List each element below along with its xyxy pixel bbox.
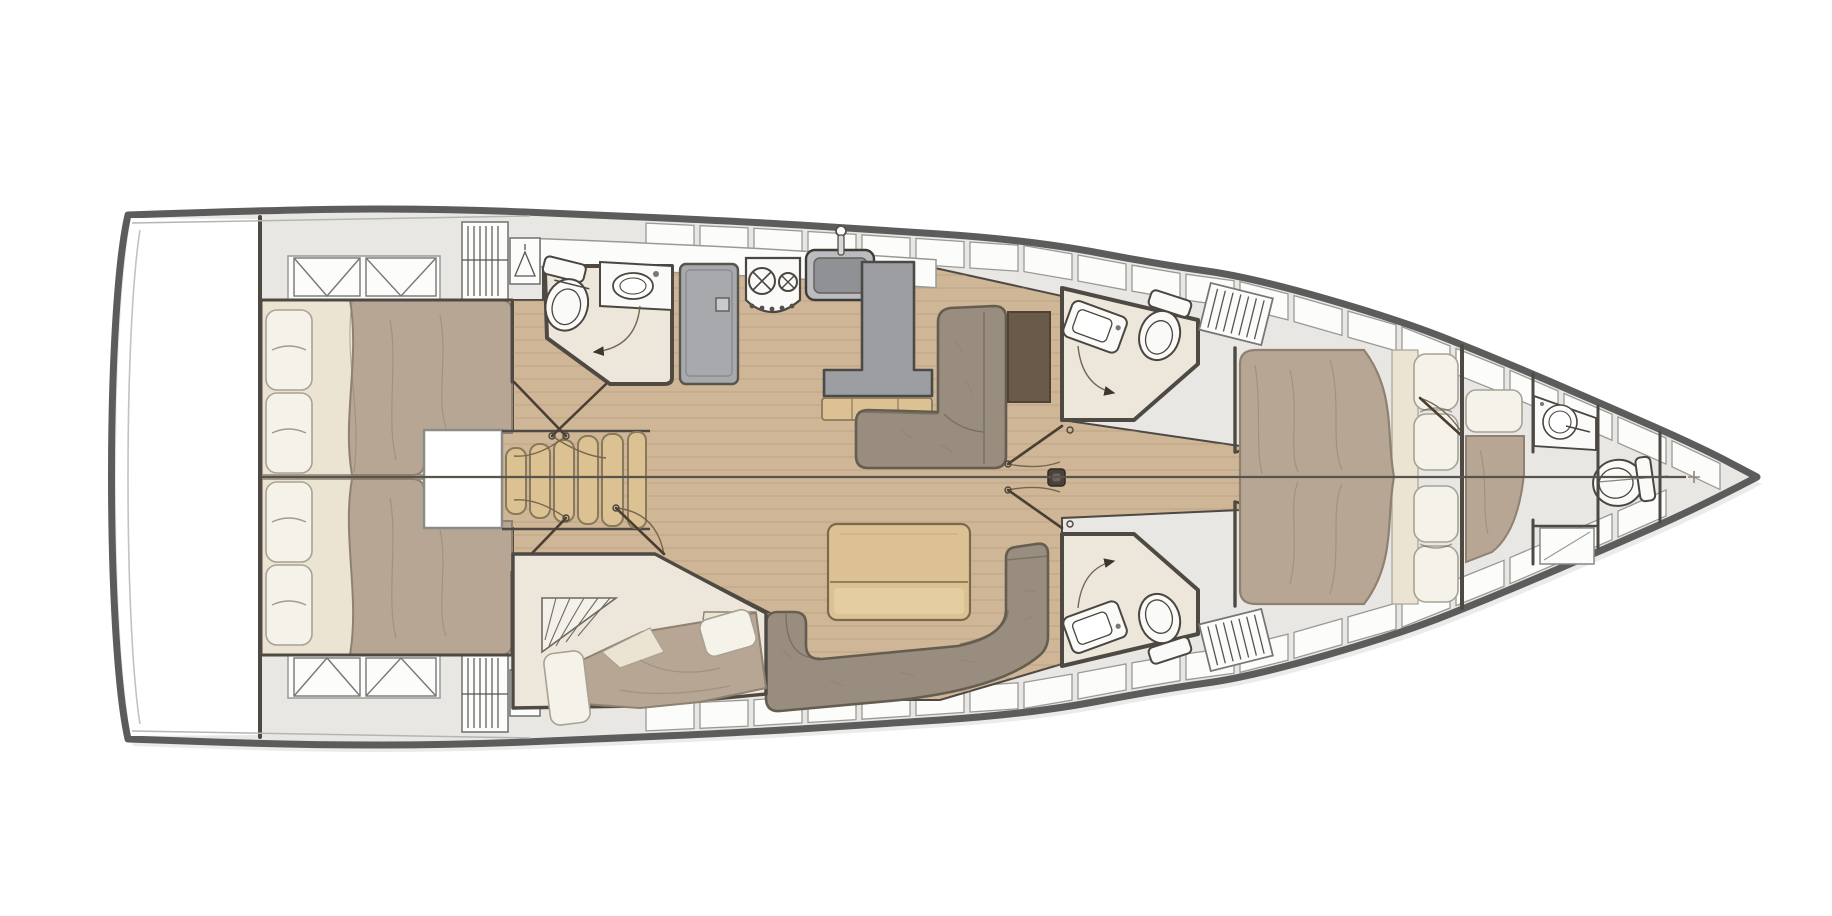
stair-step bbox=[506, 448, 526, 514]
stair-step bbox=[554, 440, 574, 522]
pillow bbox=[1466, 390, 1522, 432]
side-table bbox=[1008, 312, 1050, 402]
companionway bbox=[424, 430, 650, 529]
pillow bbox=[1414, 354, 1458, 410]
stove bbox=[746, 258, 800, 312]
wardrobe-locker bbox=[462, 222, 508, 300]
swim-platform bbox=[116, 218, 260, 736]
refrigerator bbox=[680, 264, 738, 384]
stair-step bbox=[578, 436, 598, 524]
hanging-locker bbox=[510, 238, 540, 284]
engine-hatch bbox=[424, 430, 502, 528]
fridge-logo-icon bbox=[716, 298, 729, 311]
pillow bbox=[1414, 414, 1458, 470]
pillow bbox=[543, 650, 591, 726]
yacht-floor-plan bbox=[0, 0, 1832, 916]
pillow bbox=[1414, 546, 1458, 602]
yacht-floor-plan-canvas bbox=[0, 0, 1832, 916]
wardrobe-locker bbox=[462, 654, 508, 732]
vanity-washbasin bbox=[600, 262, 672, 310]
deck-locker-cell bbox=[970, 242, 1018, 271]
pillow bbox=[1414, 486, 1458, 542]
faucet-icon bbox=[653, 271, 659, 277]
dining-table bbox=[828, 524, 970, 620]
deck-locker-cell bbox=[700, 700, 748, 728]
